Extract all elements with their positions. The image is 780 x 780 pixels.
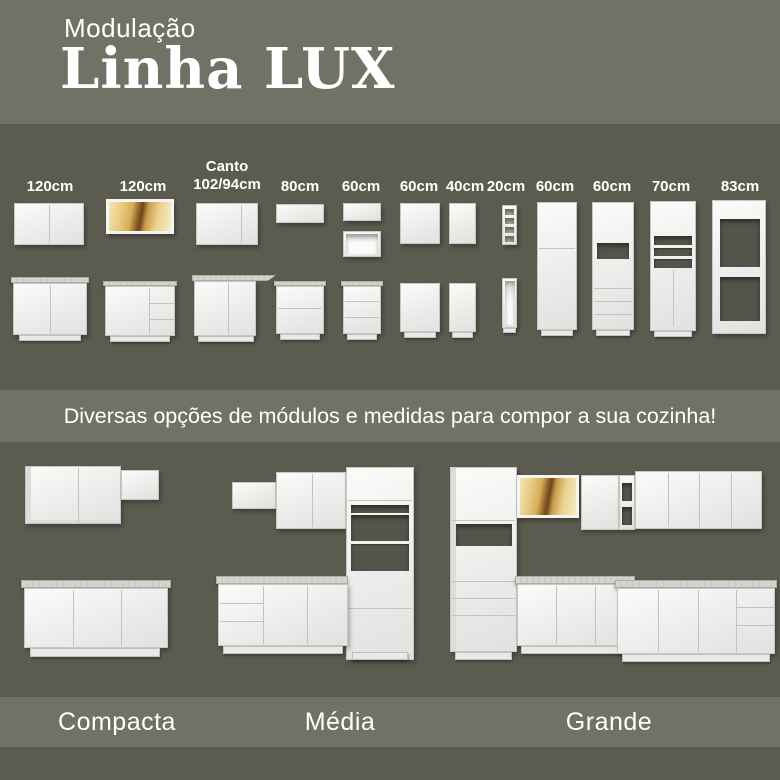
plinth — [223, 646, 343, 654]
door-split — [50, 285, 51, 333]
base-cabinet-run — [218, 584, 348, 646]
drawer-line — [452, 598, 515, 599]
corner-wall-cabinet — [196, 203, 258, 245]
door-split — [307, 586, 308, 644]
plinth — [452, 332, 473, 338]
shelf-cubby — [622, 507, 632, 525]
open-wall-niche — [343, 231, 381, 257]
open-shelf-tower — [502, 205, 517, 245]
tall-tower — [450, 467, 517, 652]
shelf — [351, 541, 409, 544]
drawer-line — [594, 301, 632, 302]
drawer-line — [150, 319, 174, 320]
plinth — [404, 332, 436, 338]
plinth — [198, 336, 254, 342]
plinth — [110, 336, 170, 342]
counter-top — [615, 580, 777, 588]
drawer-line — [150, 303, 174, 304]
door-split — [263, 586, 264, 644]
plinth — [622, 654, 770, 662]
base-drawer-cabinet — [343, 286, 381, 334]
kitchen-label-media: Média — [305, 708, 376, 737]
door-split — [736, 590, 737, 652]
tall-open-tower — [346, 467, 414, 660]
drawer-line — [220, 603, 263, 604]
plinth — [503, 328, 516, 333]
corner-open-shelves — [619, 475, 635, 530]
module-size-label: 120cm — [2, 178, 98, 196]
door-split — [699, 473, 700, 527]
plinth — [19, 335, 81, 341]
module-size-label: 120cm — [95, 178, 191, 196]
appliance-opening — [720, 277, 760, 321]
footer-band — [0, 747, 780, 780]
door-split — [698, 590, 699, 652]
door-split — [228, 283, 229, 334]
niche-interior — [505, 281, 515, 325]
shelf-slot — [351, 505, 409, 513]
base-cabinet — [105, 286, 175, 336]
open-niche — [351, 515, 409, 571]
drawer-line — [594, 288, 632, 289]
door-split — [121, 590, 122, 646]
door-split — [556, 586, 557, 644]
door-split — [731, 473, 732, 527]
shelf-cubby — [505, 236, 514, 242]
base-cabinet — [13, 283, 87, 335]
drawer-line — [220, 621, 263, 622]
wall-cabinet — [343, 203, 381, 221]
base-cabinet-run — [617, 588, 775, 654]
wall-cabinet-short — [121, 470, 159, 500]
plinth — [596, 330, 630, 336]
shelf-cubby — [505, 209, 514, 215]
corner-base-cabinet — [194, 281, 256, 336]
door-split — [668, 473, 669, 527]
door-split — [312, 474, 313, 527]
drawer-line — [278, 308, 322, 309]
canto-label-line2: 102/94cm — [193, 176, 261, 193]
counter-top — [216, 576, 348, 584]
drawer-line — [594, 314, 632, 315]
tall-cabinet — [650, 201, 696, 331]
shelf-cubby — [622, 483, 632, 501]
wall-cabinet — [25, 466, 121, 524]
base-cabinet — [400, 283, 440, 332]
shelf-cubby — [505, 218, 514, 224]
plinth — [347, 334, 377, 340]
drawer-line — [737, 607, 774, 608]
kitchen-label-compacta: Compacta — [58, 708, 176, 737]
wall-cabinet — [276, 472, 346, 529]
tall-open-frame — [712, 200, 766, 334]
door-split — [595, 586, 596, 644]
niche-interior — [346, 234, 378, 254]
shelf-cubby — [505, 227, 514, 233]
base-cabinet — [449, 283, 476, 332]
microwave-niche — [597, 243, 629, 259]
door-split — [149, 288, 150, 334]
plinth — [280, 334, 320, 340]
open-base-unit — [502, 278, 517, 328]
door-split — [539, 248, 575, 249]
drawer-line — [345, 317, 379, 318]
door-split — [49, 205, 50, 243]
plinth — [455, 652, 512, 660]
door-split — [348, 500, 412, 501]
plinth — [541, 330, 573, 336]
open-shelves — [654, 236, 692, 268]
tall-cabinet — [537, 202, 577, 330]
door-split — [73, 590, 74, 646]
wall-cabinet-run — [635, 471, 762, 529]
shelf — [654, 256, 692, 259]
drawer-line — [452, 581, 515, 582]
shelf — [654, 245, 692, 248]
base-drawer-cabinet — [276, 286, 324, 334]
kitchen-label-grande: Grande — [566, 708, 652, 737]
drawer-line — [348, 608, 412, 609]
tall-cabinet — [592, 202, 634, 330]
open-niche — [456, 524, 512, 546]
door-split — [658, 590, 659, 652]
canto-label-line1: Canto — [206, 158, 249, 175]
base-cabinet-run — [24, 588, 168, 648]
plinth — [654, 331, 692, 337]
plinth — [352, 652, 408, 660]
door-split — [673, 270, 674, 326]
door-split — [452, 520, 515, 521]
wall-cabinet — [400, 203, 440, 244]
drawer-line — [345, 301, 379, 302]
base-cabinet-run — [517, 584, 632, 646]
amber-glass-wall-cabinet — [106, 199, 174, 234]
counter-top — [21, 580, 171, 588]
wall-cabinet — [14, 203, 84, 245]
appliance-opening — [720, 219, 760, 267]
drawer-line — [452, 615, 515, 616]
module-size-label: 83cm — [692, 178, 780, 196]
wall-cabinet — [276, 204, 324, 223]
wall-cabinet — [581, 475, 619, 530]
amber-glass-wall-cabinet — [517, 475, 579, 518]
poster: Modulação Linha LUX 120cm 120cm Canto 10… — [0, 0, 780, 780]
door-split — [241, 205, 242, 243]
wall-cabinet-short — [232, 482, 276, 509]
wall-cabinet — [449, 203, 476, 244]
brand-title: Linha LUX — [60, 36, 395, 102]
banner-text: Diversas opções de módulos e medidas par… — [0, 390, 780, 442]
plinth — [30, 648, 160, 657]
drawer-line — [737, 625, 774, 626]
plinth — [521, 646, 629, 654]
door-split — [78, 468, 79, 522]
